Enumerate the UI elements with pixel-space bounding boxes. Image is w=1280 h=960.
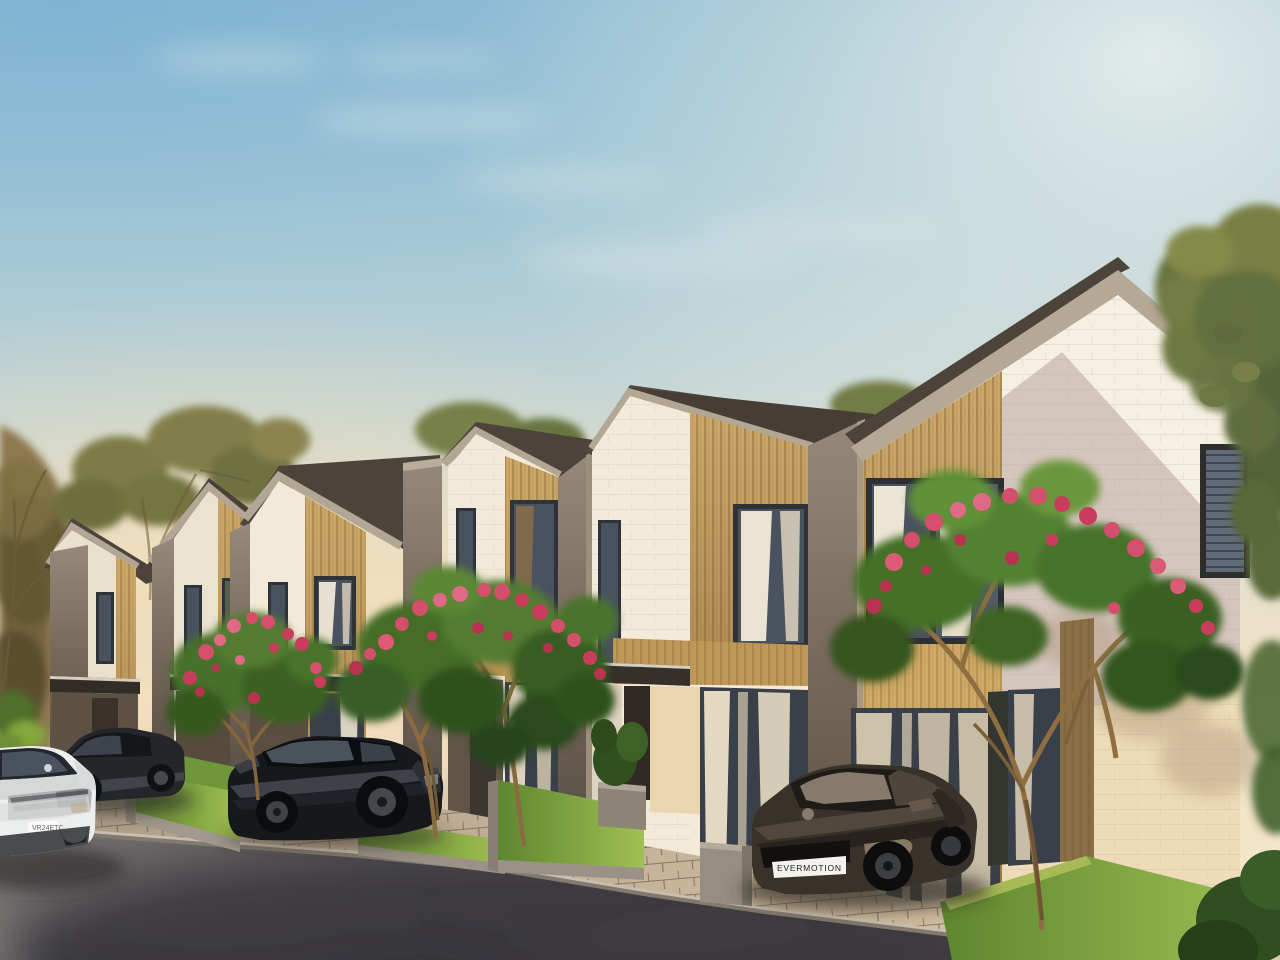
svg-text:EVERMOTION: EVERMOTION [777,863,841,873]
